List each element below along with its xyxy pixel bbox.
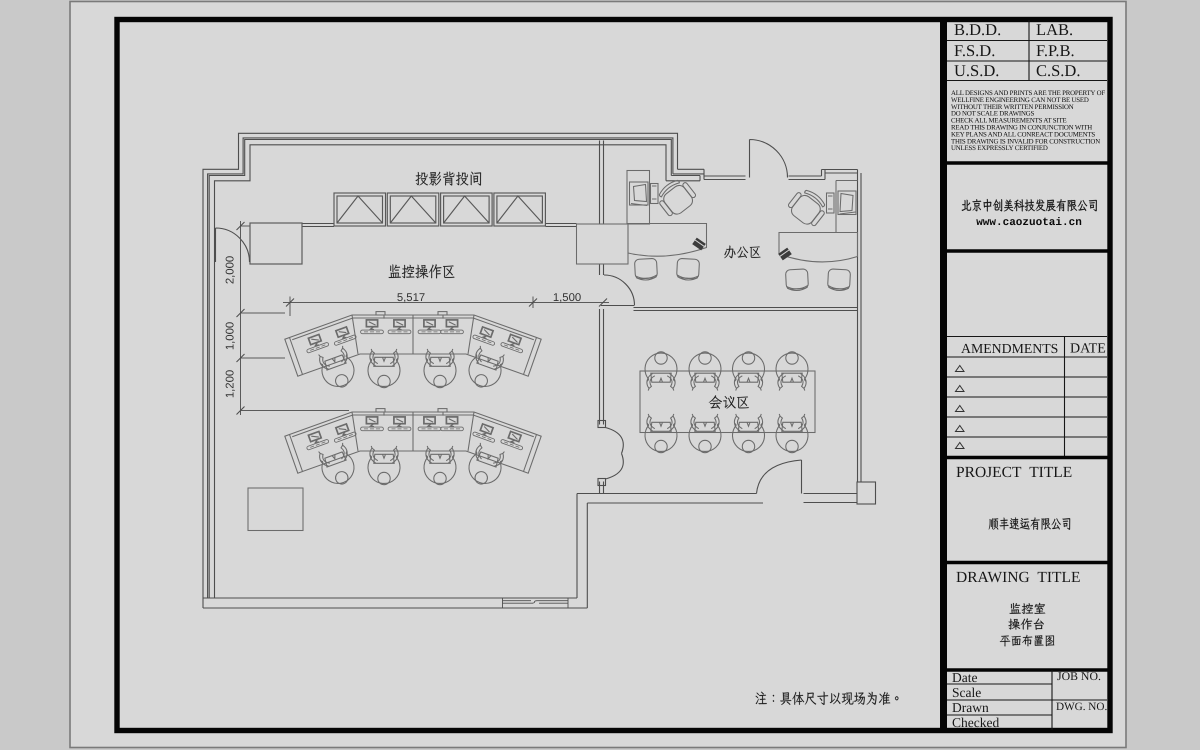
- svg-text:2,000: 2,000: [225, 256, 237, 284]
- svg-text:DWG. NO.: DWG. NO.: [1056, 701, 1107, 713]
- svg-text:www.caozuotai.cn: www.caozuotai.cn: [976, 217, 1082, 229]
- svg-text:DATE: DATE: [1070, 342, 1106, 357]
- svg-text:5,517: 5,517: [397, 292, 425, 304]
- svg-text:1,000: 1,000: [225, 322, 237, 350]
- svg-text:1,500: 1,500: [553, 292, 581, 304]
- svg-text:1,200: 1,200: [225, 370, 237, 398]
- svg-text:LAB.: LAB.: [1036, 20, 1073, 39]
- svg-text:Scale: Scale: [952, 685, 981, 700]
- svg-text:C.S.D.: C.S.D.: [1036, 61, 1080, 80]
- svg-text:B.D.D.: B.D.D.: [954, 20, 1001, 39]
- svg-text:U.S.D.: U.S.D.: [954, 61, 999, 80]
- svg-text:PROJECT TITLE: PROJECT TITLE: [956, 464, 1072, 481]
- svg-text:F.S.D.: F.S.D.: [954, 41, 995, 60]
- svg-text:AMENDMENTS: AMENDMENTS: [961, 341, 1058, 356]
- svg-text:DRAWING TITLE: DRAWING TITLE: [956, 569, 1080, 586]
- svg-text:F.P.B.: F.P.B.: [1036, 41, 1075, 60]
- svg-text:JOB NO.: JOB NO.: [1057, 669, 1101, 683]
- svg-text:UNLESS EXPRESSLY CERTIFIED: UNLESS EXPRESSLY CERTIFIED: [951, 145, 1048, 152]
- svg-text:Date: Date: [952, 670, 977, 685]
- svg-text:Checked: Checked: [952, 715, 999, 730]
- svg-text:Drawn: Drawn: [952, 700, 989, 715]
